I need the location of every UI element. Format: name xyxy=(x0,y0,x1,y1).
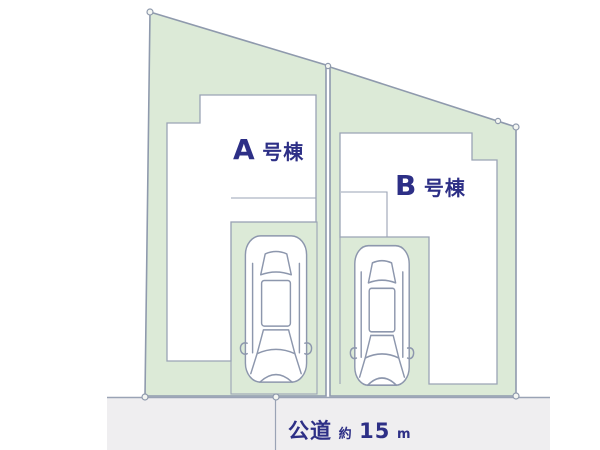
car-a-icon xyxy=(240,236,311,382)
building-b-label-letter: B xyxy=(395,169,417,202)
road-label-value: 15 xyxy=(359,419,390,443)
lot-layout-diagram: A 号棟 B 号棟 公道 約 15 m xyxy=(0,0,600,450)
corner-marker xyxy=(513,124,519,130)
building-a-label-suffix: 号棟 xyxy=(262,140,304,164)
corner-marker xyxy=(513,393,519,399)
lot-layout-page: A 号棟 B 号棟 公道 約 15 m xyxy=(0,0,600,450)
road-label-unit: m xyxy=(397,427,412,442)
building-b-label-suffix: 号棟 xyxy=(424,176,466,200)
corner-marker xyxy=(273,394,279,400)
road-label-approx: 約 xyxy=(339,426,353,442)
road-label-name: 公道 xyxy=(288,419,332,443)
building-a-label-letter: A xyxy=(233,133,256,166)
corner-marker xyxy=(147,9,153,15)
car-b-icon xyxy=(350,246,413,386)
corner-marker xyxy=(325,63,330,68)
corner-marker xyxy=(495,118,500,123)
corner-marker xyxy=(142,394,148,400)
